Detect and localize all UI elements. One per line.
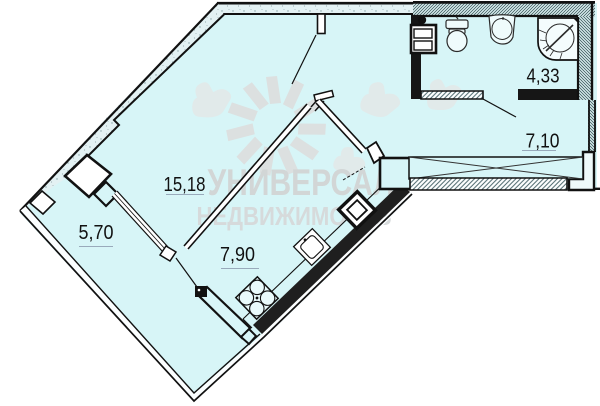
svg-text:15,18: 15,18 bbox=[164, 174, 206, 196]
svg-text:7,10: 7,10 bbox=[526, 131, 560, 153]
svg-text:7,90: 7,90 bbox=[220, 244, 255, 266]
svg-text:УНИВЕРСАЛ: УНИВЕРСАЛ bbox=[208, 162, 395, 203]
svg-text:4,33: 4,33 bbox=[527, 66, 560, 88]
svg-text:5,70: 5,70 bbox=[79, 222, 114, 244]
